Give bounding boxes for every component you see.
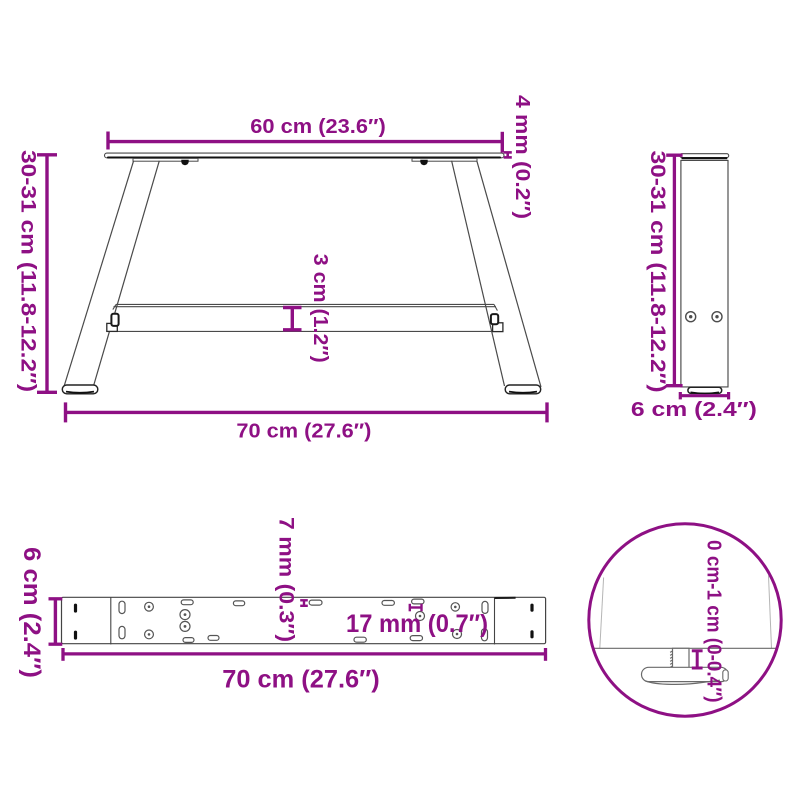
svg-text:6 cm (2.4″): 6 cm (2.4″) bbox=[631, 399, 757, 421]
svg-text:3 cm (1.2″): 3 cm (1.2″) bbox=[309, 254, 331, 363]
svg-text:6 cm (2.4″): 6 cm (2.4″) bbox=[18, 547, 45, 678]
svg-text:70 cm (27.6″): 70 cm (27.6″) bbox=[222, 666, 380, 693]
svg-text:30-31 cm (11.8-12.2″): 30-31 cm (11.8-12.2″) bbox=[646, 151, 670, 393]
svg-text:0 cm-1 cm (0-0.4″): 0 cm-1 cm (0-0.4″) bbox=[703, 540, 726, 703]
svg-text:4 mm (0.2″): 4 mm (0.2″) bbox=[511, 95, 533, 219]
svg-text:60 cm (23.6″): 60 cm (23.6″) bbox=[250, 116, 386, 138]
svg-text:7 mm (0.3″): 7 mm (0.3″) bbox=[275, 517, 298, 642]
svg-text:17 mm (0.7″): 17 mm (0.7″) bbox=[346, 610, 488, 638]
svg-text:70 cm (27.6″): 70 cm (27.6″) bbox=[236, 421, 371, 443]
svg-text:30-31 cm (11.8-12.2″): 30-31 cm (11.8-12.2″) bbox=[16, 150, 40, 392]
